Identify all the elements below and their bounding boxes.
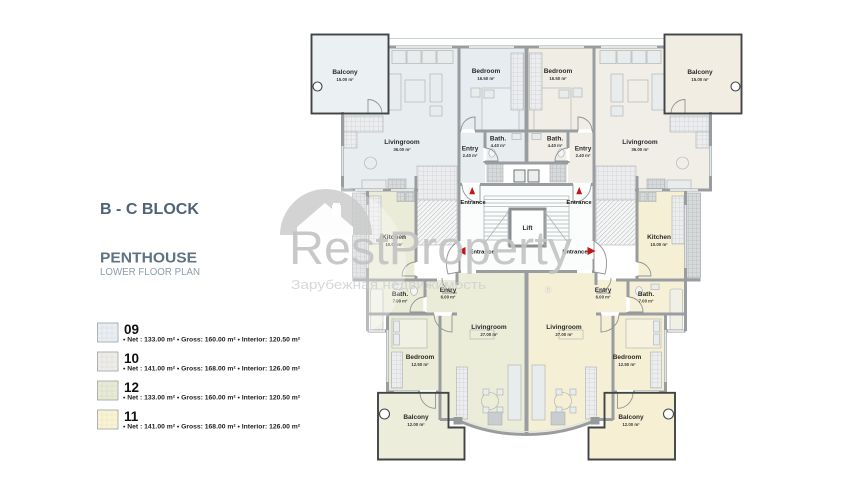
svg-text:• Net : 133.00 m² • Gross: 160: • Net : 133.00 m² • Gross: 160.00 m² • I… [123, 337, 300, 344]
svg-text:12.50 m²: 12.50 m² [411, 362, 429, 367]
svg-text:6.00 m²: 6.00 m² [596, 295, 611, 300]
svg-text:15.00 m²: 15.00 m² [336, 77, 354, 82]
svg-text:36.00 m²: 36.00 m² [393, 147, 411, 152]
svg-text:B - C BLOCK: B - C BLOCK [100, 201, 200, 218]
svg-text:Balcony: Balcony [332, 69, 358, 76]
svg-text:12.00 m²: 12.00 m² [622, 422, 640, 427]
svg-text:LOWER FLOOR PLAN: LOWER FLOOR PLAN [100, 266, 200, 278]
svg-text:4.40 m²: 4.40 m² [548, 143, 563, 148]
svg-text:PENTHOUSE: PENTHOUSE [100, 251, 197, 267]
svg-text:• Net : 141.00 m² • Gross: 168: • Net : 141.00 m² • Gross: 168.00 m² • I… [123, 424, 300, 431]
svg-text:27.00 m²: 27.00 m² [555, 332, 573, 337]
svg-text:6.00 m²: 6.00 m² [441, 295, 456, 300]
svg-text:Livingroom: Livingroom [384, 139, 420, 146]
svg-text:Livingroom: Livingroom [546, 324, 582, 331]
svg-text:7.00 m²: 7.00 m² [639, 299, 654, 304]
svg-text:• Net : 133.00 m² • Gross: 160: • Net : 133.00 m² • Gross: 160.00 m² • I… [123, 395, 300, 402]
svg-text:10: 10 [124, 351, 139, 366]
svg-text:Balcony: Balcony [618, 414, 644, 421]
svg-text:Bath.: Bath. [638, 291, 654, 298]
svg-text:Livingroom: Livingroom [622, 139, 658, 146]
svg-text:Entry: Entry [595, 287, 612, 294]
svg-text:®: ® [545, 285, 552, 295]
svg-text:Bedroom: Bedroom [613, 354, 642, 361]
svg-text:Entrance: Entrance [460, 200, 486, 206]
svg-text:Bedroom: Bedroom [472, 68, 501, 75]
svg-text:Livingroom: Livingroom [471, 324, 507, 331]
svg-text:Balcony: Balcony [403, 414, 429, 421]
svg-text:2.40 m²: 2.40 m² [463, 153, 478, 158]
svg-text:Entrance: Entrance [566, 200, 592, 206]
svg-text:Entry: Entry [575, 146, 592, 153]
svg-text:Balcony: Balcony [687, 69, 713, 76]
svg-text:12.50 m²: 12.50 m² [618, 362, 636, 367]
svg-text:Bedroom: Bedroom [406, 354, 435, 361]
svg-text:27.00 m²: 27.00 m² [480, 332, 498, 337]
svg-text:12: 12 [124, 380, 139, 395]
svg-text:• Net : 141.00 m² • Gross: 168: • Net : 141.00 m² • Gross: 168.00 m² • I… [123, 366, 300, 373]
svg-text:16.50 m²: 16.50 m² [549, 76, 567, 81]
svg-text:2.40 m²: 2.40 m² [576, 153, 591, 158]
svg-text:Entry: Entry [462, 146, 479, 153]
svg-text:11: 11 [124, 409, 139, 424]
svg-text:Зарубежная недвижимость: Зарубежная недвижимость [291, 278, 486, 292]
svg-text:Bedroom: Bedroom [544, 68, 573, 75]
svg-text:09: 09 [124, 322, 139, 337]
svg-text:36.00 m²: 36.00 m² [631, 147, 649, 152]
svg-text:Bath.: Bath. [547, 136, 563, 143]
svg-text:12.00 m²: 12.00 m² [407, 422, 425, 427]
svg-text:4.40 m²: 4.40 m² [491, 143, 506, 148]
svg-text:Kitchen: Kitchen [647, 234, 671, 241]
svg-text:Bath.: Bath. [490, 136, 506, 143]
svg-text:RestProperty: RestProperty [289, 221, 573, 274]
svg-text:10.00 m²: 10.00 m² [650, 242, 668, 247]
svg-text:16.50 m²: 16.50 m² [477, 76, 495, 81]
svg-text:15.00 m²: 15.00 m² [691, 77, 709, 82]
